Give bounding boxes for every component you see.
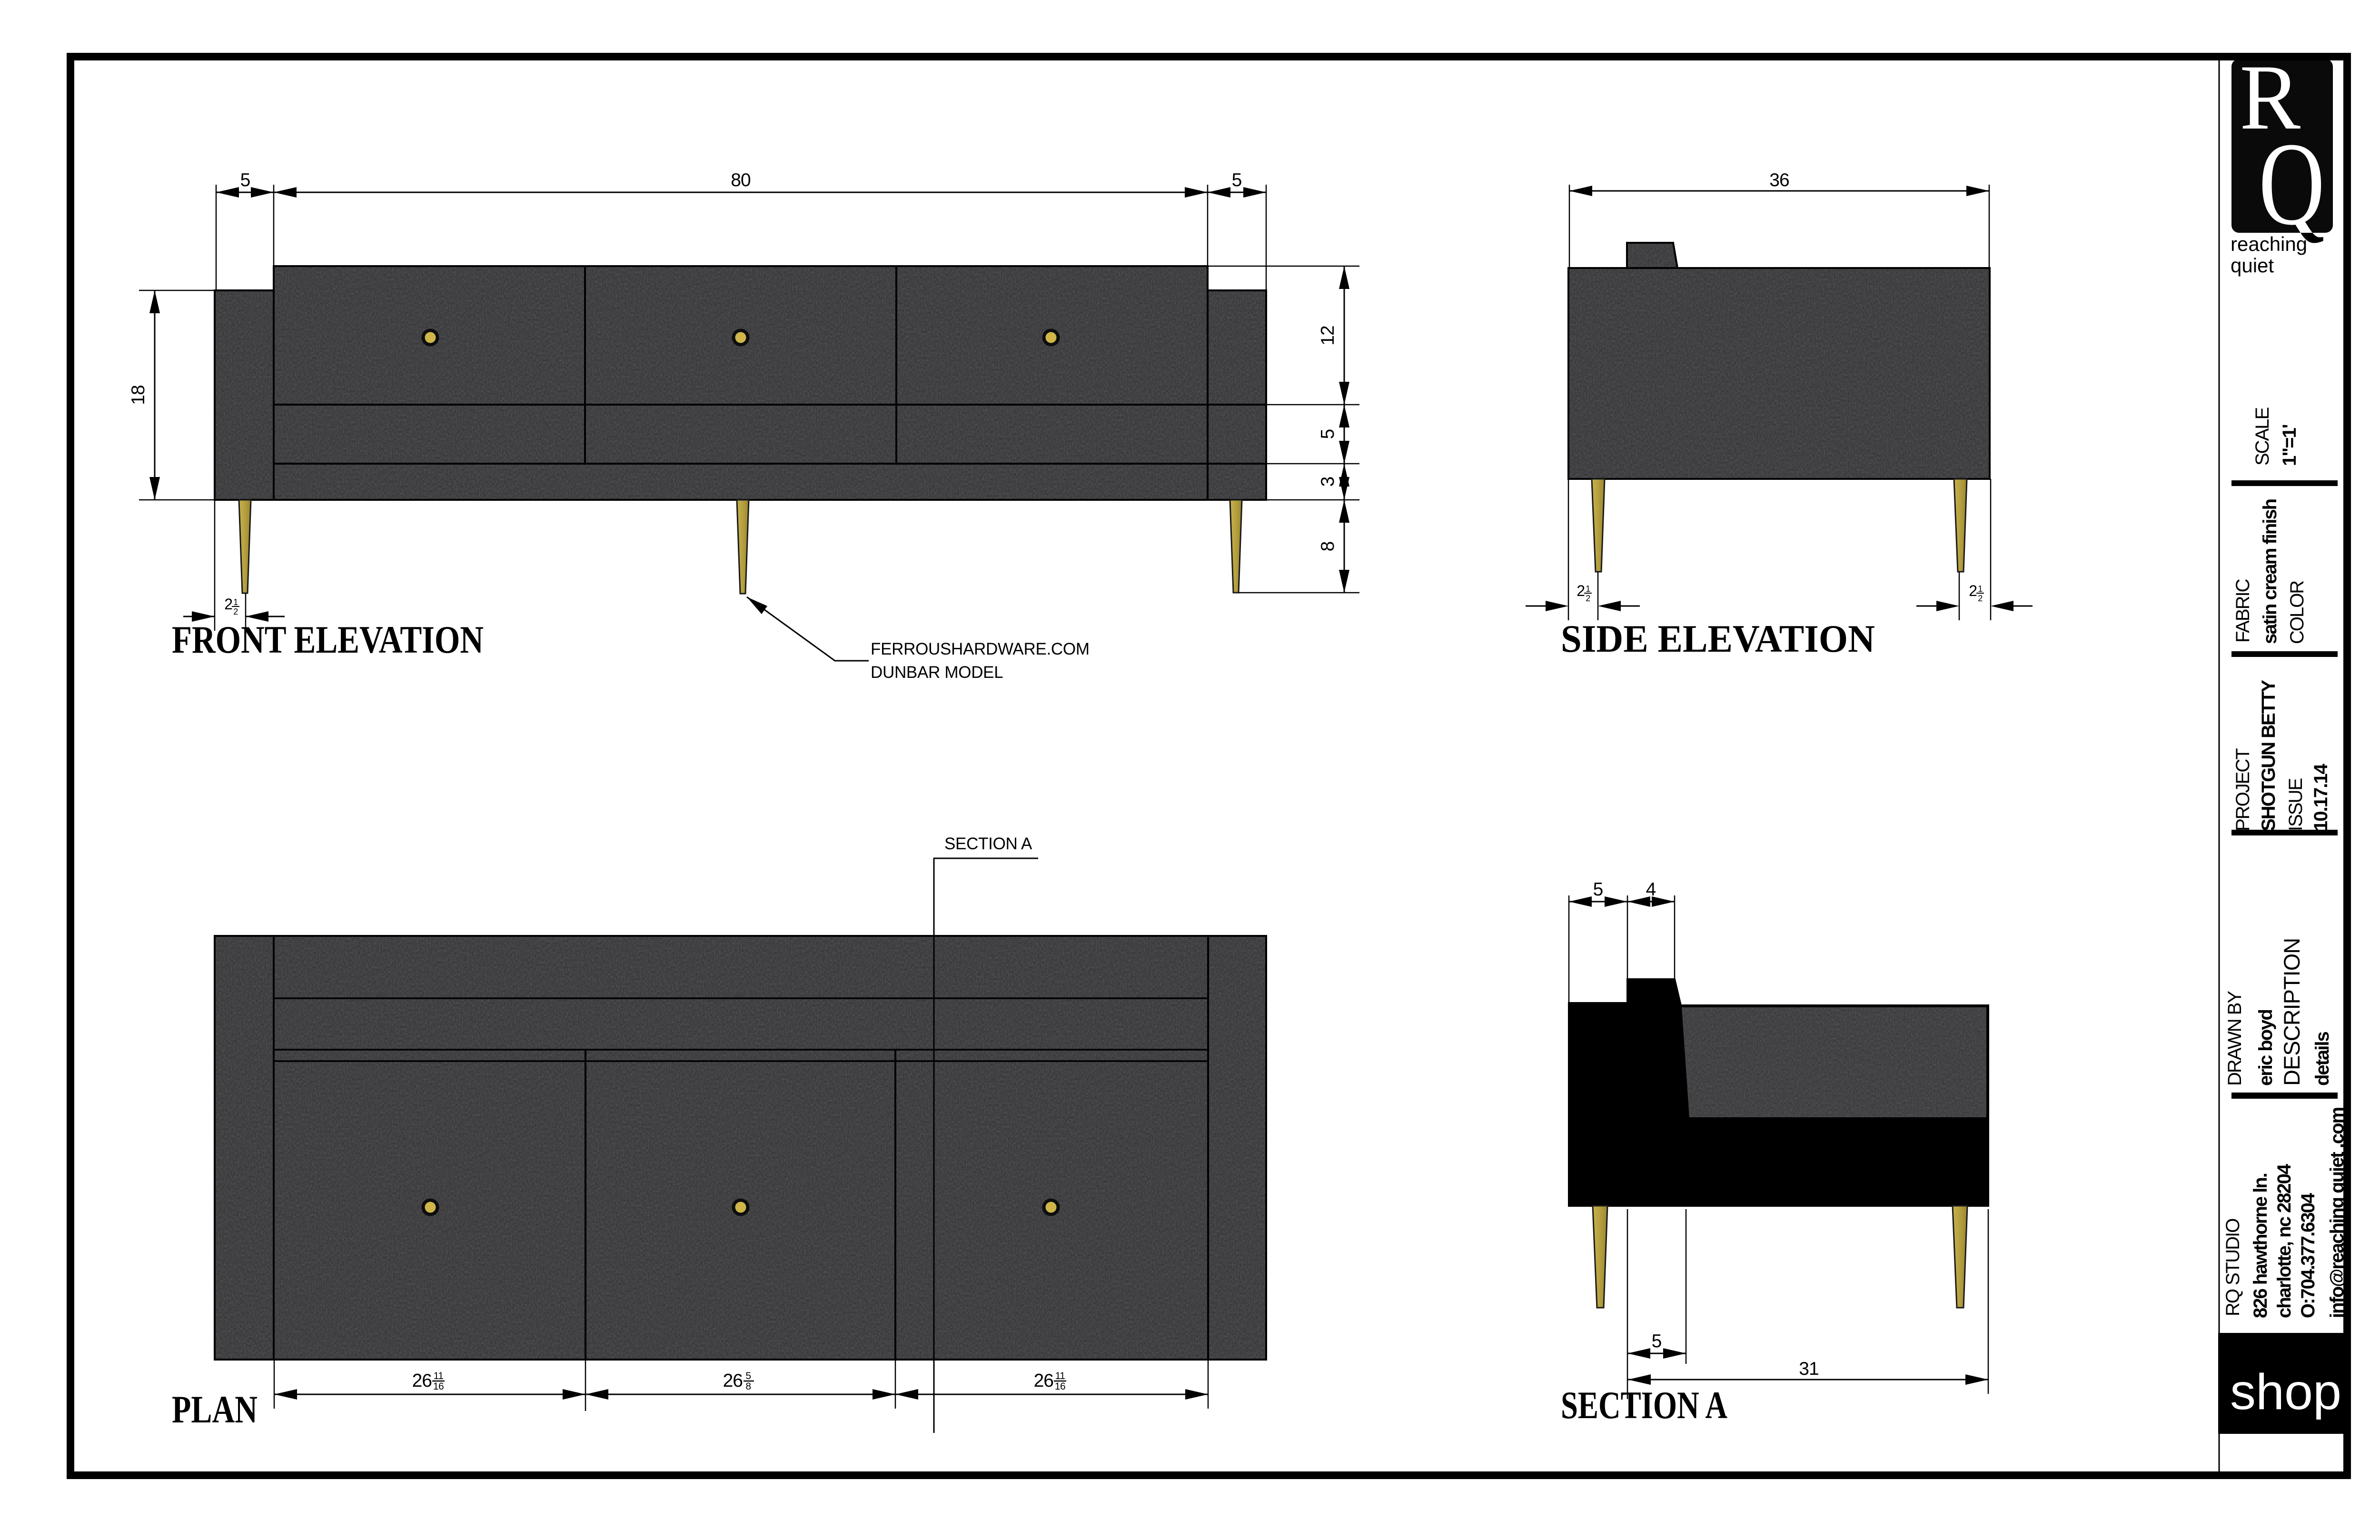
svg-text:5: 5 — [1652, 1331, 1662, 1351]
svg-text:26: 26 — [412, 1371, 432, 1391]
svg-text:Q: Q — [2259, 118, 2325, 250]
svg-text:eric boyd: eric boyd — [2255, 1010, 2276, 1086]
svg-text:11: 11 — [1055, 1371, 1065, 1381]
svg-text:PROJECT: PROJECT — [2232, 748, 2253, 831]
svg-text:1: 1 — [1978, 584, 1983, 594]
svg-text:RQ STUDIO: RQ STUDIO — [2222, 1219, 2243, 1316]
svg-text:FERROUSHARDWARE.COM: FERROUSHARDWARE.COM — [871, 640, 1090, 658]
svg-text:reaching: reaching — [2231, 233, 2307, 255]
svg-text:DRAWN BY: DRAWN BY — [2224, 991, 2245, 1086]
svg-text:shop: shop — [2230, 1364, 2341, 1420]
svg-text:COLOR: COLOR — [2287, 581, 2308, 644]
svg-text:DESCRIPTION: DESCRIPTION — [2279, 938, 2304, 1086]
svg-text:16: 16 — [433, 1381, 444, 1392]
svg-text:5: 5 — [1318, 429, 1338, 439]
svg-text:SECTION A: SECTION A — [1561, 1383, 1727, 1427]
svg-text:2: 2 — [1586, 594, 1590, 603]
svg-text:5: 5 — [1593, 879, 1603, 900]
svg-text:8: 8 — [745, 1381, 751, 1392]
svg-text:SECTION A: SECTION A — [944, 835, 1032, 853]
svg-text:5: 5 — [745, 1371, 751, 1381]
svg-text:FABRIC: FABRIC — [2232, 579, 2253, 643]
svg-text:2: 2 — [1577, 582, 1585, 599]
svg-text:ISSUE: ISSUE — [2285, 779, 2306, 831]
svg-text:1: 1 — [1586, 584, 1590, 594]
svg-text:3: 3 — [1318, 477, 1338, 487]
svg-text:26: 26 — [1034, 1371, 1053, 1391]
svg-text:O:704.377.6304: O:704.377.6304 — [2298, 1192, 2319, 1318]
svg-text:1"=1': 1"=1' — [2279, 425, 2300, 466]
svg-text:2: 2 — [1978, 594, 1983, 603]
svg-text:FRONT ELEVATION: FRONT ELEVATION — [172, 618, 484, 661]
svg-text:satin cream finish: satin cream finish — [2260, 499, 2281, 644]
svg-text:36: 36 — [1769, 170, 1789, 190]
svg-text:DUNBAR MODEL: DUNBAR MODEL — [871, 663, 1003, 682]
svg-text:quiet: quiet — [2231, 254, 2274, 277]
svg-text:18: 18 — [128, 385, 149, 405]
svg-text:10.17.14: 10.17.14 — [2311, 764, 2331, 831]
svg-text:12: 12 — [1318, 326, 1338, 345]
svg-text:5: 5 — [240, 170, 250, 190]
svg-text:5: 5 — [1232, 170, 1242, 190]
svg-text:11: 11 — [434, 1371, 444, 1381]
svg-text:31: 31 — [1799, 1359, 1818, 1379]
svg-text:2: 2 — [224, 596, 232, 613]
svg-text:SCALE: SCALE — [2252, 408, 2273, 466]
svg-text:26: 26 — [723, 1371, 743, 1391]
svg-text:80: 80 — [731, 170, 751, 190]
svg-text:4: 4 — [1646, 879, 1656, 900]
svg-text:8: 8 — [1318, 542, 1338, 552]
svg-text:1: 1 — [233, 597, 238, 607]
svg-text:SHOTGUN BETTY: SHOTGUN BETTY — [2258, 679, 2279, 831]
svg-text:SIDE ELEVATION: SIDE ELEVATION — [1561, 617, 1875, 660]
svg-text:2: 2 — [233, 607, 238, 616]
svg-text:PLAN: PLAN — [172, 1388, 258, 1431]
svg-text:16: 16 — [1055, 1381, 1065, 1392]
svg-text:2: 2 — [1969, 582, 1977, 599]
svg-text:charlotte, nc 28204: charlotte, nc 28204 — [2274, 1163, 2295, 1318]
svg-text:826 hawthorne ln.: 826 hawthorne ln. — [2250, 1173, 2271, 1318]
svg-text:details: details — [2312, 1032, 2333, 1086]
